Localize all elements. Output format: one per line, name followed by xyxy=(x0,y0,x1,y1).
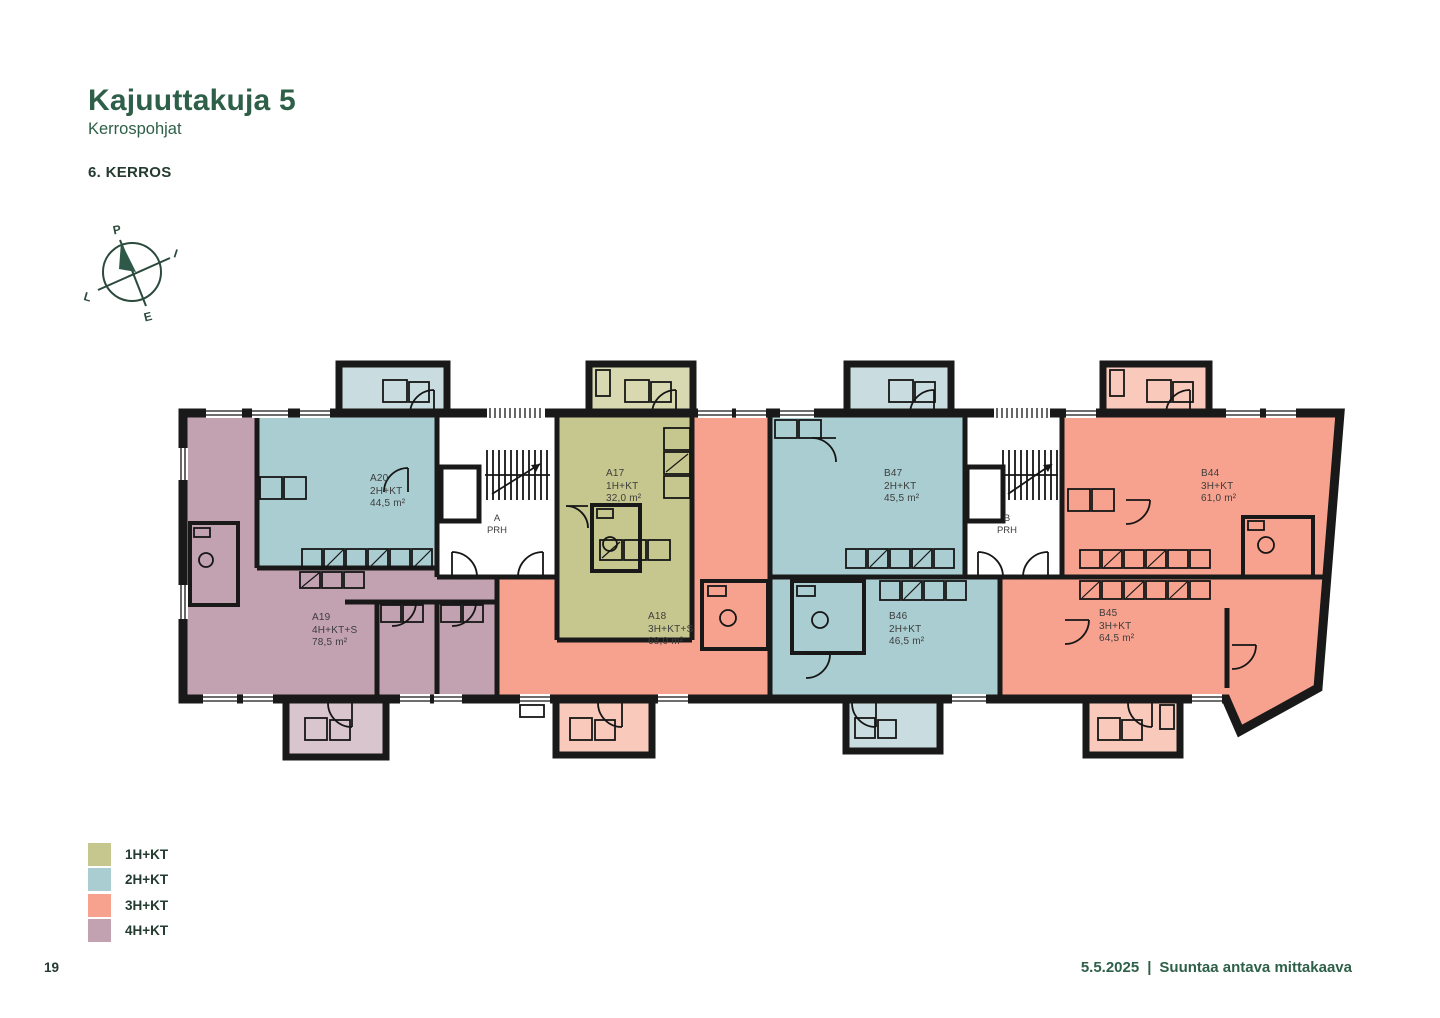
legend-item-1hkt: 1H+KT xyxy=(88,842,168,866)
region-A17 xyxy=(557,413,692,640)
footer-note: 5.5.2025|Suuntaa antava mittakaava xyxy=(1081,959,1352,976)
legend-swatch-2hkt xyxy=(88,868,111,891)
apt-label-B47: B472H+KT45,5 m² xyxy=(884,468,919,506)
legend-label-3hkt: 3H+KT xyxy=(125,898,168,913)
footer-date: 5.5.2025 xyxy=(1081,959,1139,976)
legend: 1H+KT 2H+KT 3H+KT 4H+KT xyxy=(88,842,168,943)
legend-swatch-1hkt xyxy=(88,843,111,866)
legend-label-4hkt: 4H+KT xyxy=(125,923,168,938)
legend-item-2hkt: 2H+KT xyxy=(88,868,168,892)
floor-plan xyxy=(0,0,1440,1018)
stairwell-label-A: APRH xyxy=(477,513,517,536)
footer-separator: | xyxy=(1147,959,1151,976)
balcony-furniture xyxy=(383,370,1193,402)
apt-label-B46: B462H+KT46,5 m² xyxy=(889,611,924,649)
legend-label-2hkt: 2H+KT xyxy=(125,872,168,887)
balconies-bottom xyxy=(286,699,1180,757)
legend-item-4hkt: 4H+KT xyxy=(88,919,168,943)
apt-label-A17: A171H+KT32,0 m² xyxy=(606,468,641,506)
footer-scale-note: Suuntaa antava mittakaava xyxy=(1159,959,1352,976)
legend-swatch-3hkt xyxy=(88,894,111,917)
balcony-doors xyxy=(328,703,1152,727)
page-number: 19 xyxy=(44,960,59,975)
legend-item-3hkt: 3H+KT xyxy=(88,893,168,917)
apt-label-A20: A202H+KT44,5 m² xyxy=(370,473,405,511)
apt-label-A19: A194H+KT+S78,5 m² xyxy=(312,612,357,650)
apt-label-A18: A183H+KT+S68,0 m² xyxy=(648,611,693,649)
apt-label-B45: B453H+KT64,5 m² xyxy=(1099,608,1134,646)
apt-label-B44: B443H+KT61,0 m² xyxy=(1201,468,1236,506)
balcony-furniture xyxy=(305,705,1174,740)
legend-label-1hkt: 1H+KT xyxy=(125,847,168,862)
legend-swatch-4hkt xyxy=(88,919,111,942)
stairwell-label-B: BPRH xyxy=(986,513,1028,536)
